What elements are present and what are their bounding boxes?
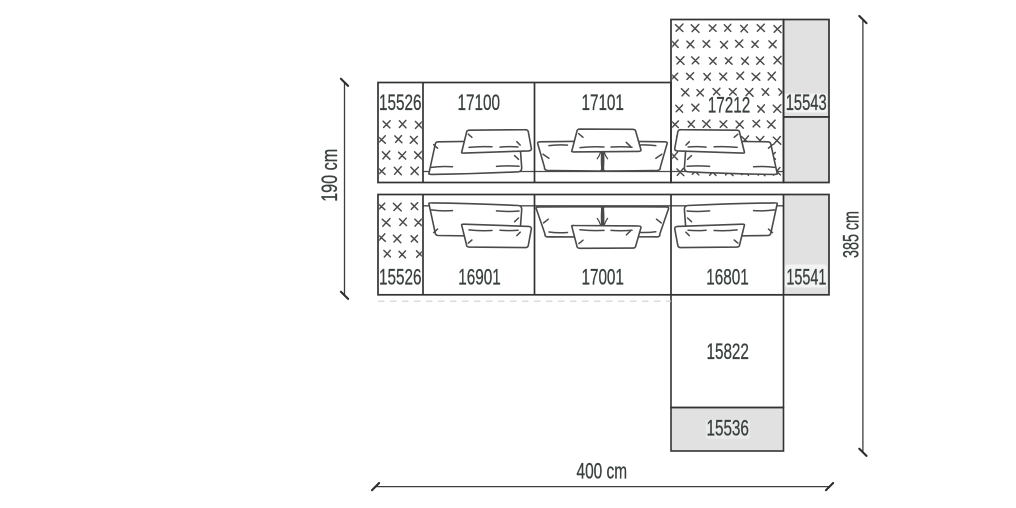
svg-text:15526: 15526 [379,90,422,115]
svg-text:17100: 17100 [458,90,501,115]
svg-text:15543: 15543 [786,90,827,115]
svg-text:16901: 16901 [458,264,501,289]
svg-text:15822: 15822 [706,339,749,364]
svg-text:15541: 15541 [786,264,826,289]
svg-text:17212: 17212 [708,93,751,118]
svg-text:16801: 16801 [706,264,749,289]
svg-text:17001: 17001 [581,264,624,289]
svg-text:15536: 15536 [706,416,749,441]
svg-text:15526: 15526 [379,264,422,289]
svg-text:190 cm: 190 cm [317,149,342,202]
svg-text:400 cm: 400 cm [577,459,628,484]
svg-text:17101: 17101 [581,90,624,115]
svg-text:385 cm: 385 cm [838,211,863,258]
